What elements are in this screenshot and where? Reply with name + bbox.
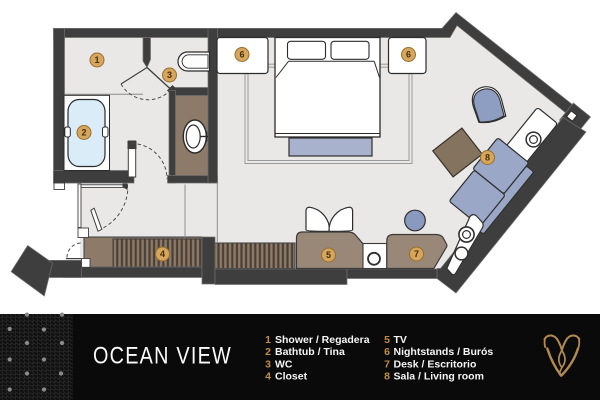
svg-text:5: 5 bbox=[326, 250, 331, 260]
svg-text:5: 5 bbox=[384, 334, 390, 346]
svg-text:Nightstands / Burós: Nightstands / Burós bbox=[394, 346, 494, 358]
svg-text:6: 6 bbox=[384, 346, 390, 358]
svg-text:8: 8 bbox=[384, 371, 390, 383]
svg-text:OCEAN VIEW: OCEAN VIEW bbox=[93, 343, 232, 370]
svg-text:3: 3 bbox=[167, 70, 172, 80]
svg-text:Desk / Escritorio: Desk / Escritorio bbox=[394, 358, 477, 370]
svg-text:8: 8 bbox=[485, 153, 490, 163]
svg-text:2: 2 bbox=[81, 128, 86, 138]
svg-text:Sala / Living room: Sala / Living room bbox=[394, 371, 484, 383]
svg-text:3: 3 bbox=[265, 358, 271, 370]
svg-text:TV: TV bbox=[394, 334, 407, 346]
svg-text:6: 6 bbox=[239, 50, 244, 60]
svg-text:7: 7 bbox=[384, 358, 390, 370]
svg-text:Bathtub / Tina: Bathtub / Tina bbox=[275, 346, 345, 358]
svg-text:WC: WC bbox=[275, 358, 293, 370]
svg-text:4: 4 bbox=[160, 249, 165, 259]
svg-text:Closet: Closet bbox=[275, 371, 308, 383]
svg-text:2: 2 bbox=[265, 346, 271, 358]
svg-text:Shower / Regadera: Shower / Regadera bbox=[275, 334, 370, 346]
svg-text:7: 7 bbox=[414, 249, 419, 259]
svg-text:6: 6 bbox=[406, 50, 411, 60]
svg-text:1: 1 bbox=[94, 55, 99, 65]
svg-text:1: 1 bbox=[265, 334, 271, 346]
svg-text:4: 4 bbox=[265, 371, 271, 383]
